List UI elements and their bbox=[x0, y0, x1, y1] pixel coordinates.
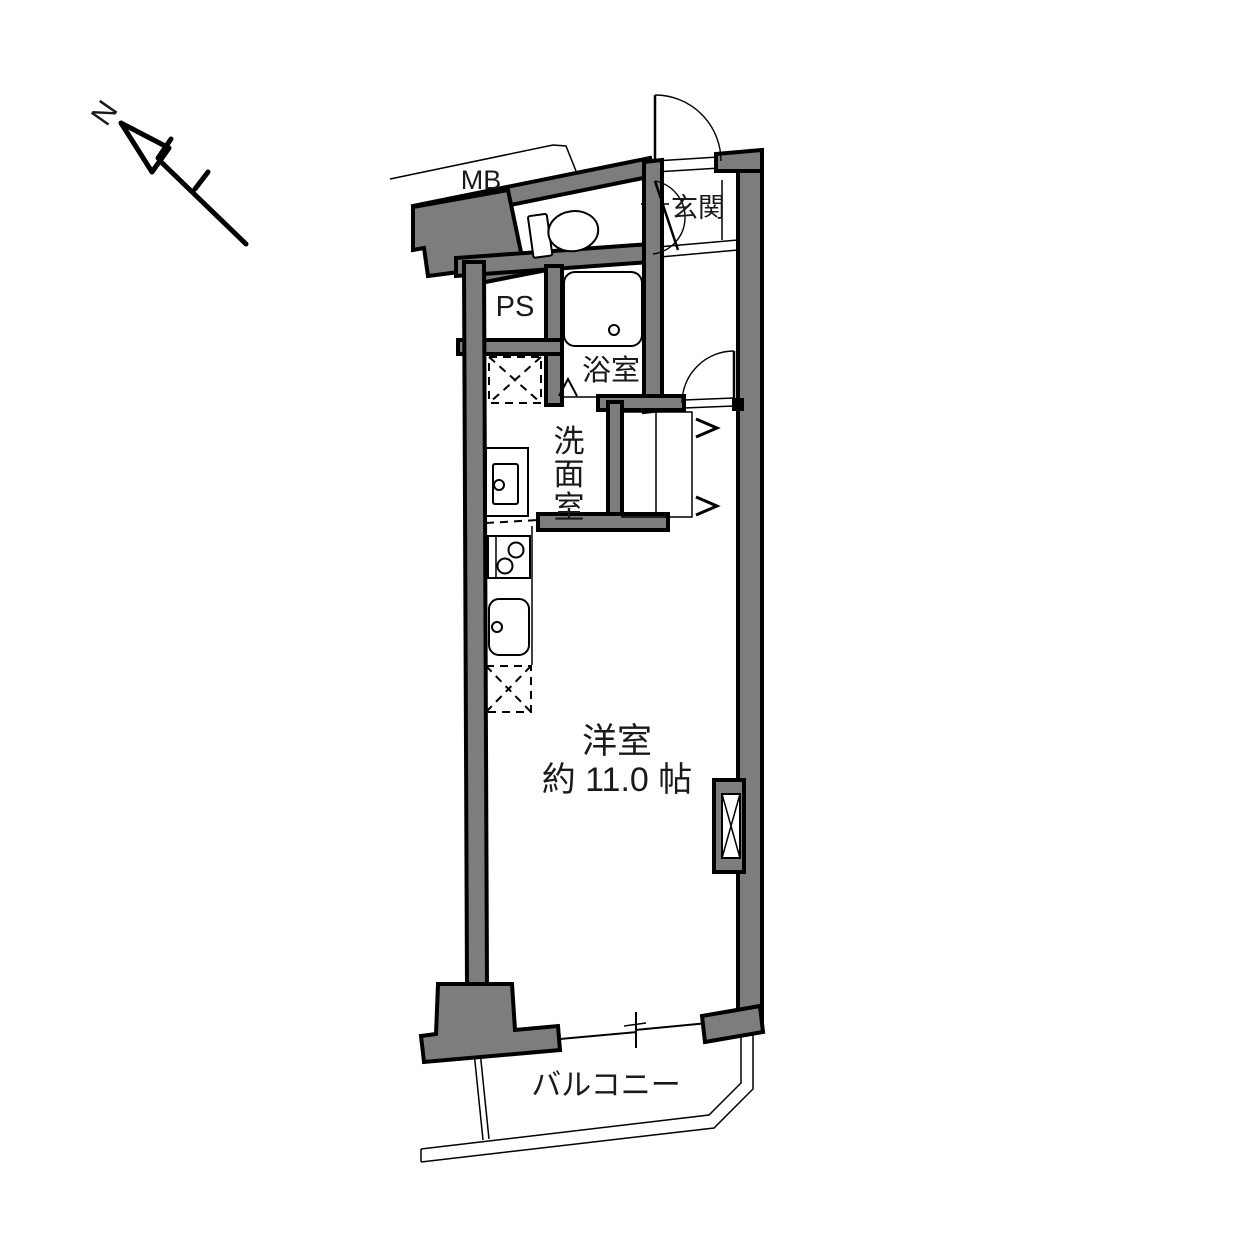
wall-left bbox=[464, 262, 487, 988]
living-room-size-label: 約 11.0 帖 bbox=[542, 761, 693, 799]
washroom-door-threshold-2 bbox=[684, 406, 734, 408]
washroom-door-arc bbox=[682, 351, 734, 403]
bathtub-icon bbox=[564, 272, 642, 346]
washroom-label-char-2: 面 bbox=[554, 457, 585, 492]
vanity-faucet bbox=[494, 480, 504, 490]
wall-stub-bottom-right bbox=[702, 1006, 763, 1042]
washroom-label-char-3: 室 bbox=[554, 490, 585, 525]
meter-box-label: MB bbox=[461, 165, 502, 195]
stove-burner-1 bbox=[509, 543, 524, 558]
duct-shaft bbox=[722, 794, 740, 858]
compass-north-label: N bbox=[85, 95, 124, 132]
entrance-door-arc bbox=[655, 95, 721, 161]
stove-burner-2 bbox=[498, 559, 513, 574]
balcony-label: バルコニー bbox=[531, 1069, 680, 1102]
kitchen-sink-faucet bbox=[492, 622, 502, 632]
fixtures bbox=[486, 207, 717, 712]
compass-tick-2 bbox=[195, 172, 208, 189]
living-room-label: 洋室 bbox=[582, 722, 652, 761]
doors bbox=[653, 95, 734, 403]
sliding-window-leaf-1 bbox=[560, 1032, 637, 1039]
bathtub-drain bbox=[609, 325, 619, 335]
wall-ps-bath-divider bbox=[546, 266, 562, 405]
pipe-space-label: PS bbox=[496, 291, 535, 323]
closet-door-arrow-bottom bbox=[696, 497, 717, 515]
bathroom-label: 浴室 bbox=[582, 354, 640, 387]
entrance-label: 玄関 bbox=[671, 193, 725, 223]
pillar-bottom-left bbox=[421, 984, 560, 1062]
fridge-space-x2 bbox=[486, 666, 531, 712]
entrance-threshold-line-1 bbox=[655, 157, 718, 161]
floor-plan-page: N bbox=[0, 0, 1252, 1252]
entrance-threshold-line-2 bbox=[655, 168, 720, 172]
floor-plan-drawing: N bbox=[0, 0, 1252, 1252]
wall-right bbox=[738, 171, 762, 1030]
compass-north-arrow: N bbox=[85, 95, 246, 244]
wall-closet-left bbox=[608, 402, 622, 528]
closet-interior bbox=[622, 412, 692, 517]
closet-door-arrow-top bbox=[696, 419, 717, 437]
washroom-label-char-1: 洗 bbox=[554, 424, 585, 459]
washroom-door-threshold-1 bbox=[684, 398, 734, 400]
kitchen-boundary-dashed-line bbox=[486, 520, 538, 523]
